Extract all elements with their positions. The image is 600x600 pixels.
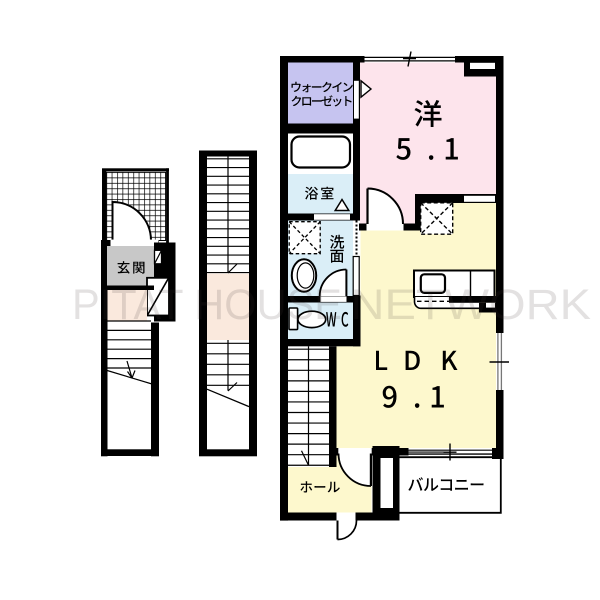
svg-text:NETWORK: NETWORK — [351, 282, 592, 329]
svg-text:PITAT HOUSE: PITAT HOUSE — [72, 282, 342, 329]
